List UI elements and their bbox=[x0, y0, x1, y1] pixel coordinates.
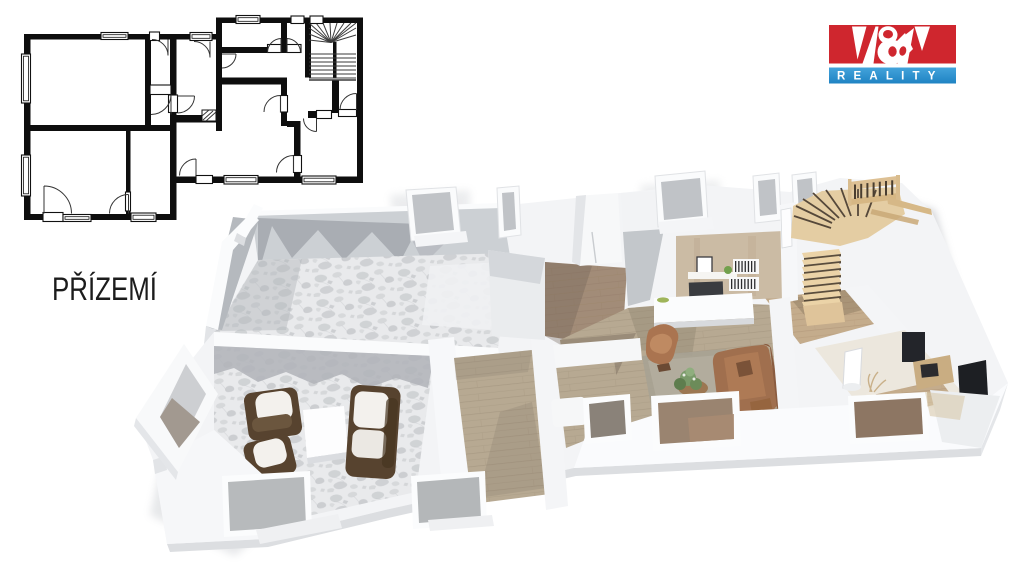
svg-text:REALITY: REALITY bbox=[837, 71, 944, 83]
svg-text:PŘÍZEMÍ: PŘÍZEMÍ bbox=[52, 271, 157, 307]
